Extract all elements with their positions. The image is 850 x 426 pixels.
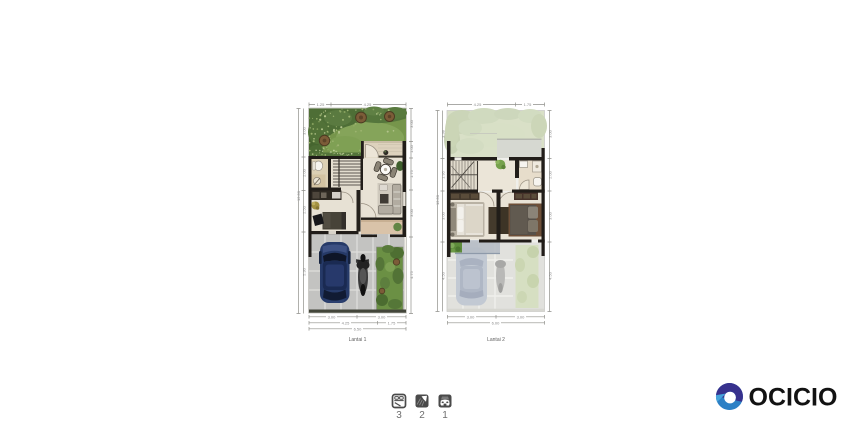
svg-text:3.00: 3.00	[409, 119, 414, 128]
svg-text:2.00: 2.00	[301, 168, 306, 177]
svg-text:2: 2	[419, 410, 425, 421]
svg-text:4.25: 4.25	[364, 102, 373, 107]
svg-text:1.75: 1.75	[409, 169, 414, 178]
svg-text:3.00: 3.00	[440, 211, 445, 220]
svg-text:4.25: 4.25	[474, 102, 483, 107]
svg-text:6.50: 6.50	[354, 327, 363, 332]
svg-text:4.50: 4.50	[440, 271, 445, 280]
svg-text:3.00: 3.00	[301, 126, 306, 135]
svg-text:3.38: 3.38	[440, 129, 445, 138]
svg-text:3.00: 3.00	[467, 315, 476, 320]
svg-text:1.95: 1.95	[440, 170, 445, 179]
svg-text:1: 1	[442, 410, 448, 421]
svg-text:4.25: 4.25	[342, 321, 351, 326]
svg-text:3.00: 3.00	[547, 129, 552, 138]
svg-text:4.75: 4.75	[409, 270, 414, 279]
svg-text:OCICIO: OCICIO	[749, 384, 838, 412]
svg-text:6.00: 6.00	[492, 321, 501, 326]
svg-text:Lantai 2: Lantai 2	[487, 337, 505, 343]
svg-text:5.30: 5.30	[301, 267, 306, 276]
svg-text:2.50: 2.50	[301, 205, 306, 214]
svg-text:4.50: 4.50	[547, 271, 552, 280]
svg-text:1.75: 1.75	[388, 321, 397, 326]
svg-text:3.00: 3.00	[328, 315, 337, 320]
svg-text:1.75: 1.75	[524, 102, 533, 107]
svg-text:12.50: 12.50	[435, 194, 440, 205]
svg-text:2.00: 2.00	[547, 170, 552, 179]
svg-text:1.00: 1.00	[409, 144, 414, 153]
svg-text:12.50: 12.50	[296, 190, 301, 201]
svg-text:Lantai 1: Lantai 1	[349, 337, 367, 343]
svg-text:3.00: 3.00	[409, 208, 414, 217]
svg-text:1.25: 1.25	[317, 102, 326, 107]
svg-text:3.00: 3.00	[378, 315, 387, 320]
svg-text:3.00: 3.00	[517, 315, 526, 320]
svg-text:3.00: 3.00	[547, 211, 552, 220]
svg-text:3: 3	[396, 410, 402, 421]
